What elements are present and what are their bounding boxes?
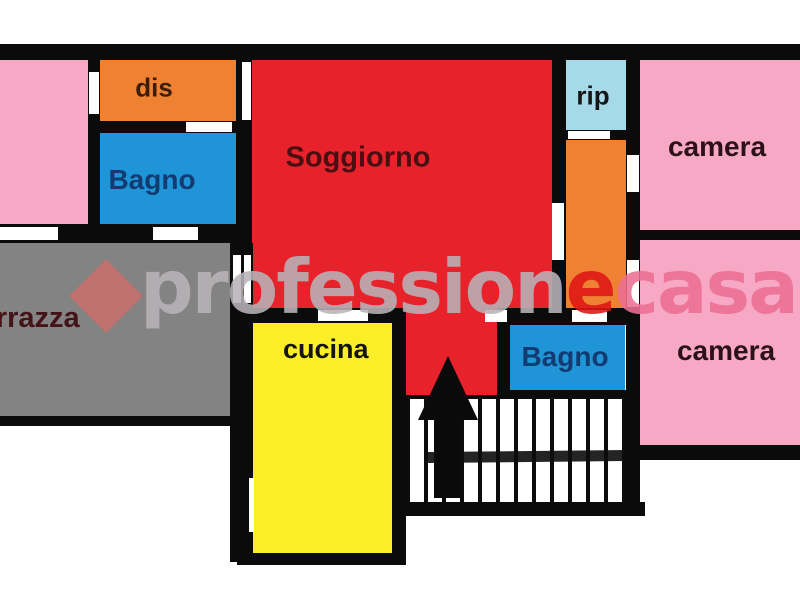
door-opening <box>186 122 232 132</box>
wall-segment <box>392 502 645 516</box>
door-opening <box>89 72 99 114</box>
door-opening <box>242 62 251 120</box>
wall-segment <box>237 553 406 565</box>
watermark-part-red: e <box>566 243 615 331</box>
watermark-part-gray: profession <box>140 243 566 331</box>
label-dis: dis <box>135 73 173 104</box>
stairs-up-arrow-icon <box>414 352 484 500</box>
door-opening <box>568 131 610 139</box>
label-bagno-2: Bagno <box>521 341 608 373</box>
door-opening <box>153 227 198 240</box>
label-cucina: cucina <box>283 330 313 368</box>
label-terrazza: terrazza <box>0 302 80 335</box>
label-bagno-1: Bagno <box>108 164 195 196</box>
door-opening <box>627 155 639 192</box>
label-soggiorno: Soggiorno <box>286 142 431 175</box>
door-opening <box>0 227 58 240</box>
label-camera-2: camera <box>677 335 775 367</box>
label-rip: rip <box>576 81 609 112</box>
door-opening <box>249 478 254 532</box>
watermark-professionecasa: professionecasa <box>140 250 797 325</box>
wall-segment <box>0 416 232 426</box>
wall-segment <box>626 230 800 240</box>
room-bedroom-left <box>0 60 88 224</box>
label-camera-1: camera <box>668 131 766 163</box>
watermark-part-pink: casa <box>614 243 796 331</box>
wall-segment <box>392 308 406 562</box>
wall-segment <box>626 445 800 460</box>
wall-segment <box>0 44 800 60</box>
floor-plan: dis Bagno Soggiorno rip camera camera Ba… <box>0 0 800 600</box>
